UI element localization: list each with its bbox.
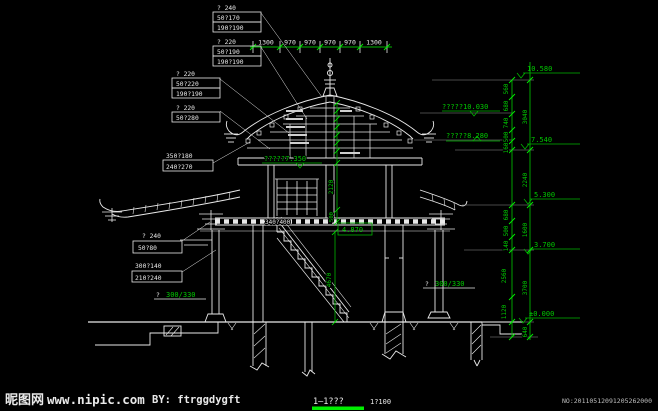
scale-underline [312,407,364,411]
spec-row: 190?190 [176,91,203,98]
right-dimension-chains: 560 680 740 500 160 680 500 140 2560 112… [501,62,533,340]
spec-box-7: 300?140 210?240 [132,263,182,282]
dim-label: 680 [503,100,510,111]
column-spec-left: ? 300/330 [154,291,206,299]
spec-box-5: 350?180 240?270 [163,153,213,171]
column-diameter-label: 300/330 [435,280,465,288]
spec-prefix: ? [156,292,160,299]
elevation-value: 3.700 [534,241,555,249]
dim-label: 140 [503,240,510,251]
dim-label: 160 [503,142,510,153]
dim-label: 740 [503,117,510,128]
spec-header: ? 240 [217,5,236,12]
dim-label: 3700 [522,280,529,295]
floor-band [200,218,450,231]
spec-row: 50?220 [176,81,199,88]
elevation-value: ?????8.280 [446,132,488,140]
spec-header: ? 220 [176,71,195,78]
spec-row: 190?190 [217,25,244,32]
pier-right [382,322,406,359]
spec-box-4: ? 220 50?280 [172,105,220,122]
dim-label: 1300 [366,39,382,47]
lower-roof [100,190,467,217]
dimension-annotations: 1300 970 970 970 970 1300 ? 240 50?170 1… [132,5,580,340]
left-grade-steps [95,322,218,345]
watermark-site: 昵图网 [5,393,44,408]
section-name: 1—1??? [313,397,344,407]
right-grade-step [482,325,524,334]
dim-label: 1120 [501,304,508,319]
dim-label: 500 [503,131,510,142]
dim-label: 3040 [522,109,529,124]
extension-lines [414,80,538,337]
spec-row: 50?280 [176,115,199,122]
spec-box-1: ? 240 50?170 190?190 [213,5,261,32]
spec-row: 190?190 [217,59,244,66]
dim-label: 680 [503,209,510,220]
spec-row: 50?80 [138,245,157,252]
section-scale-label: 1—1??? 1?100 [312,397,391,410]
dim-label: 560 [503,83,510,94]
dim-label: 1300 [258,39,274,47]
spec-row: 210?240 [135,275,162,282]
elevation-floor2: ?????7.350 [262,155,322,168]
spec-box-3: ? 220 50?220 190?190 [172,71,220,98]
dim-label: 2240 [522,172,529,187]
dim-label: 1600 [522,222,529,237]
elevation-value: ?????7.350 [264,155,306,163]
spec-header: ? 240 [142,233,161,240]
staircase [277,217,351,322]
elevation-lower-ridge: ?????8.280 [446,132,500,141]
spec-row: 300?140 [135,263,162,270]
watermark-url: www.nipic.com [47,392,145,407]
watermark-author: BY: ftrggdygft [152,394,241,406]
balustrade [275,179,319,216]
spec-row: 50?190 [217,49,240,56]
elevation-value: 10.580 [527,65,552,73]
dim-label: 970 [304,39,316,47]
spec-prefix: ? [425,281,429,288]
elevation-marks: 10.580 ?????10.030 ?????8.280 ?????7.350 [262,65,580,323]
cad-screenshot: 1300 970 970 970 970 1300 ? 240 50?170 1… [0,0,658,411]
elevation-value: 7.540 [531,136,552,144]
elevation-value: ±0.000 [529,310,554,318]
roof-finial [323,58,337,96]
elevation-value: ?????10.030 [442,103,488,111]
right-retaining-wall [471,322,524,366]
pier-left [250,322,269,370]
top-dimension-chain: 1300 970 970 970 970 1300 [250,39,392,54]
upper-roof [224,95,436,142]
dim-label: 970 [324,39,336,47]
spec-row: 240?270 [166,164,193,171]
elevation-upper-eave: ?????10.030 [442,103,500,116]
dim-label: 500 [329,212,335,222]
cad-canvas: 1300 970 970 970 970 1300 ? 240 50?170 1… [0,0,658,411]
dim-label: 500 [503,225,510,236]
dim-label: 640 [522,326,529,337]
column-diameter-label: 300/330 [166,291,196,299]
serial-number: NO:20110512091205262000 [562,397,652,405]
elevation-value: 5.300 [534,191,555,199]
ground-line [88,322,523,345]
dim-label: 2120 [328,179,335,194]
elevation-value: 4.870 [342,226,363,234]
dim-label: 4670 [326,272,333,287]
spec-header: ? 220 [176,105,195,112]
column-spec-right: ? 300/330 [423,280,475,288]
spec-header: ? 220 [217,39,236,46]
chain-ticks [509,77,533,340]
foundations [250,322,524,376]
spec-row: 350?180 [166,153,193,160]
dim-label: 970 [284,39,296,47]
spec-box-2: ? 220 50?190 190?190 [213,39,261,66]
footer: 昵图网 www.nipic.com BY: ftrggdygft 1—1??? … [5,392,652,410]
pier-stair [302,322,315,376]
spec-box-6: ? 240 50?80 [133,233,182,253]
dim-label: 2560 [501,268,508,283]
scale-ratio: 1?100 [370,398,391,406]
spec-row: 50?170 [217,15,240,22]
elevation-ground: ±0.000 [519,310,580,323]
dim-label: 970 [344,39,356,47]
roof-framing [246,96,413,158]
spec-label-boxes: ? 240 50?170 190?190 ? 220 50?190 190?19… [132,5,475,299]
beam-size-label: 340?400 [265,219,291,226]
elevation-top: 10.580 [517,65,580,78]
